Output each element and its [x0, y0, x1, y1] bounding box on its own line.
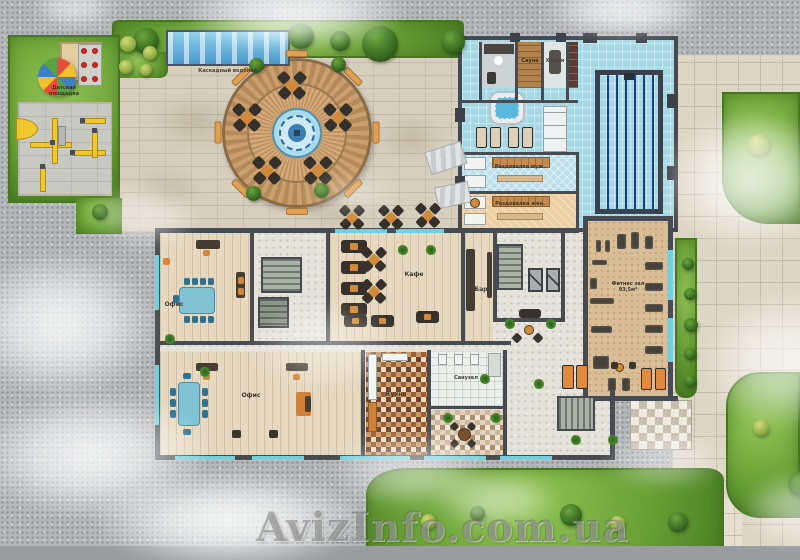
play-structure — [92, 130, 98, 158]
tree-icon — [331, 57, 346, 72]
chair — [238, 288, 244, 295]
chair — [170, 388, 176, 396]
bush-icon — [120, 36, 136, 52]
terrace-bench — [373, 122, 380, 144]
round-table — [524, 325, 534, 335]
chair — [202, 399, 208, 407]
tree-icon — [314, 183, 329, 198]
gym-equipment — [617, 234, 626, 249]
wall-segment — [430, 406, 506, 409]
wall-segment — [583, 216, 673, 221]
play-slide — [58, 126, 66, 146]
gym-equipment — [631, 232, 639, 249]
chair — [200, 278, 206, 285]
desk — [466, 249, 475, 311]
site-plan: Детская площадка Каскадный водопад Сауна… — [0, 0, 800, 560]
play-joint — [40, 164, 45, 169]
cascade-waterfall — [166, 30, 290, 66]
flower-icon — [81, 48, 87, 54]
changing-women-label: Раздевалка жен. — [488, 202, 552, 208]
gym-equipment — [622, 378, 630, 391]
wall-pillar — [667, 166, 678, 180]
booth-table — [341, 261, 367, 274]
gym-equipment — [593, 356, 609, 369]
tree-icon — [92, 204, 108, 220]
tree-icon — [441, 30, 465, 54]
window-strip — [252, 456, 304, 460]
chair — [192, 316, 198, 323]
staircase — [497, 244, 523, 290]
kitchen-counter — [368, 354, 377, 400]
wall-pillar — [455, 108, 465, 122]
wall-segment — [461, 233, 465, 343]
washroom-sink — [494, 56, 503, 65]
lounge-chair — [562, 365, 574, 389]
staircase — [261, 257, 302, 293]
wall-segment — [576, 152, 579, 228]
elevator — [546, 268, 560, 292]
booth-table — [344, 315, 367, 327]
chair — [208, 316, 214, 323]
conference-table-bottom — [178, 382, 200, 426]
flower-icon — [81, 76, 87, 82]
round-table — [470, 198, 480, 208]
toilet — [438, 354, 447, 365]
plant-icon — [165, 334, 175, 344]
tree-icon — [684, 348, 696, 360]
desk — [196, 240, 220, 249]
gym-equipment — [592, 260, 607, 265]
terrace-bench — [286, 50, 308, 57]
gym-equipment — [590, 298, 614, 304]
washroom-toilet — [487, 72, 496, 84]
reception-desk-top — [305, 396, 311, 412]
chair — [200, 316, 206, 323]
wall-pillar — [667, 94, 678, 108]
bush-icon — [753, 420, 769, 436]
booth-table — [371, 315, 394, 327]
kitchen-label: Кухня — [380, 392, 412, 399]
window-strip — [340, 456, 410, 460]
terrace-bench — [215, 122, 222, 144]
wall-pillar — [583, 33, 597, 43]
plant-icon — [608, 435, 618, 445]
staircase — [258, 297, 289, 328]
wall-segment — [610, 390, 615, 458]
toilet — [470, 354, 479, 365]
chair — [611, 362, 618, 369]
plant-icon — [491, 413, 501, 423]
flower-icon — [81, 62, 87, 68]
plant-icon — [571, 435, 581, 445]
flower-icon — [92, 62, 98, 68]
play-joint — [50, 140, 55, 145]
window-strip — [155, 255, 159, 310]
wall-segment — [479, 42, 482, 100]
chair — [192, 278, 198, 285]
wall-segment — [326, 233, 330, 343]
play-structure — [72, 150, 106, 156]
gym-equipment — [605, 240, 610, 252]
chair — [202, 410, 208, 418]
plant-icon — [443, 413, 453, 423]
bar-label: Бар — [470, 287, 492, 294]
playground-label: Детская площадка — [42, 86, 86, 98]
gym-equipment — [645, 262, 663, 270]
wall-segment — [583, 396, 678, 401]
desk — [286, 363, 308, 371]
bench-men — [497, 175, 543, 182]
wall-segment — [503, 350, 507, 457]
kitchen-counter-top — [382, 353, 408, 361]
wall-pillar — [510, 33, 520, 42]
jacuzzi — [489, 91, 525, 125]
bush-icon — [140, 64, 152, 76]
gym-equipment — [596, 240, 601, 252]
plant-icon — [426, 245, 436, 255]
chair — [238, 277, 244, 284]
flower-icon — [92, 76, 98, 82]
watermark: AvizInfo.com.ua — [256, 504, 629, 551]
cloud-overlay — [30, 0, 120, 30]
paving-stain — [128, 168, 203, 213]
wc-label: Санузел — [446, 376, 486, 382]
sauna-room — [518, 42, 542, 88]
kitchen-counter-orange — [368, 402, 377, 432]
wall-segment — [462, 152, 578, 155]
cloud-overlay — [0, 250, 160, 400]
chair — [170, 410, 176, 418]
chair — [184, 316, 190, 323]
lounge-chair — [522, 127, 533, 148]
terrace-bench — [286, 208, 308, 215]
gym-equipment — [645, 236, 653, 249]
tree-icon — [362, 26, 398, 62]
chair — [184, 278, 190, 285]
window-strip — [424, 456, 486, 460]
fitness-area: 93,5м² — [606, 288, 650, 294]
play-joint — [80, 118, 85, 123]
gym-equipment — [645, 325, 663, 333]
booth-table — [341, 282, 367, 295]
lounge-chair — [641, 368, 652, 390]
wall-segment — [462, 100, 578, 103]
lawn-northeast — [722, 92, 800, 224]
wall-segment — [541, 42, 544, 100]
lounge-chair — [655, 368, 666, 390]
tree-icon — [684, 375, 696, 387]
wall-segment — [427, 350, 431, 457]
chair — [163, 258, 170, 265]
chair — [170, 399, 176, 407]
towel-shelves — [543, 106, 567, 152]
plant-icon — [505, 319, 515, 329]
elevator — [528, 268, 543, 292]
plant-icon — [398, 245, 408, 255]
booth-table — [416, 311, 439, 323]
gym-equipment — [645, 304, 663, 312]
pool-ladder — [624, 73, 634, 80]
toilet — [454, 354, 463, 365]
cafe-label: Кафе — [400, 272, 428, 279]
plant-icon — [200, 367, 210, 377]
tree-icon — [330, 31, 350, 51]
chair — [183, 373, 191, 379]
window-strip — [668, 250, 673, 300]
chair — [203, 250, 210, 256]
bush-icon — [143, 46, 157, 60]
washroom-counter — [484, 44, 514, 54]
chair — [208, 278, 214, 285]
sauna-label: Сауна — [517, 59, 543, 65]
gym-equipment — [591, 326, 612, 333]
window-strip — [668, 318, 673, 362]
lawn-southeast — [726, 372, 800, 518]
wc-stall — [464, 213, 486, 225]
bush-icon — [119, 60, 133, 74]
play-joint — [92, 128, 97, 133]
lounge-chair — [576, 365, 588, 389]
tree-icon — [668, 512, 688, 532]
wall-segment — [462, 191, 578, 194]
booth-table — [341, 240, 367, 253]
wall-pillar — [556, 33, 566, 42]
chair — [202, 388, 208, 396]
hammam-label: Хамам — [542, 59, 568, 65]
wall-segment — [561, 228, 565, 322]
wall-segment — [250, 233, 254, 343]
wall-segment — [668, 216, 673, 401]
chair — [232, 430, 241, 438]
window-strip — [155, 365, 159, 425]
wall-segment — [515, 42, 518, 100]
flower-icon — [92, 48, 98, 54]
chair — [293, 374, 300, 380]
fountain-centerpiece — [294, 130, 300, 136]
tree-icon — [246, 186, 261, 201]
tree-icon — [684, 288, 696, 300]
lobby-sofa — [519, 309, 541, 318]
chair — [629, 362, 636, 369]
tree-icon — [684, 318, 698, 332]
staircase — [557, 396, 595, 431]
checker-terrace — [630, 400, 692, 450]
plant-icon — [534, 379, 544, 389]
tree-icon — [288, 23, 314, 49]
wall-segment — [566, 42, 569, 100]
play-structure — [40, 166, 46, 192]
office-top-label: Офис — [160, 302, 188, 309]
spa-shelf-unit — [568, 42, 578, 88]
chair — [183, 429, 191, 435]
fitness-label: Фитнес зал 93,5м² — [606, 282, 650, 294]
window-strip — [175, 456, 235, 460]
tree-icon — [682, 258, 694, 270]
gym-equipment — [645, 346, 663, 354]
lounge-chair — [476, 127, 487, 148]
bench-women — [497, 213, 543, 220]
conference-table-top — [179, 287, 215, 314]
wall-segment — [155, 341, 511, 345]
gym-equipment — [608, 378, 616, 391]
window-strip — [335, 229, 387, 233]
office-bottom-label: Офис — [236, 393, 266, 400]
gym-equipment — [590, 278, 597, 289]
plant-icon — [546, 319, 556, 329]
lounge-chair — [490, 127, 501, 148]
sink-counter — [488, 353, 501, 377]
window-strip — [500, 456, 552, 460]
changing-men-label: Раздевалка муж. — [488, 165, 552, 171]
window-strip — [396, 229, 444, 233]
wall-pillar — [636, 33, 647, 43]
waterfall-label: Каскадный водопад — [196, 69, 260, 75]
chair — [269, 430, 278, 438]
bush-icon — [748, 134, 770, 156]
wall-segment — [361, 350, 365, 457]
swimming-pool — [595, 70, 663, 214]
lounge-chair — [508, 127, 519, 148]
play-joint — [70, 150, 75, 155]
